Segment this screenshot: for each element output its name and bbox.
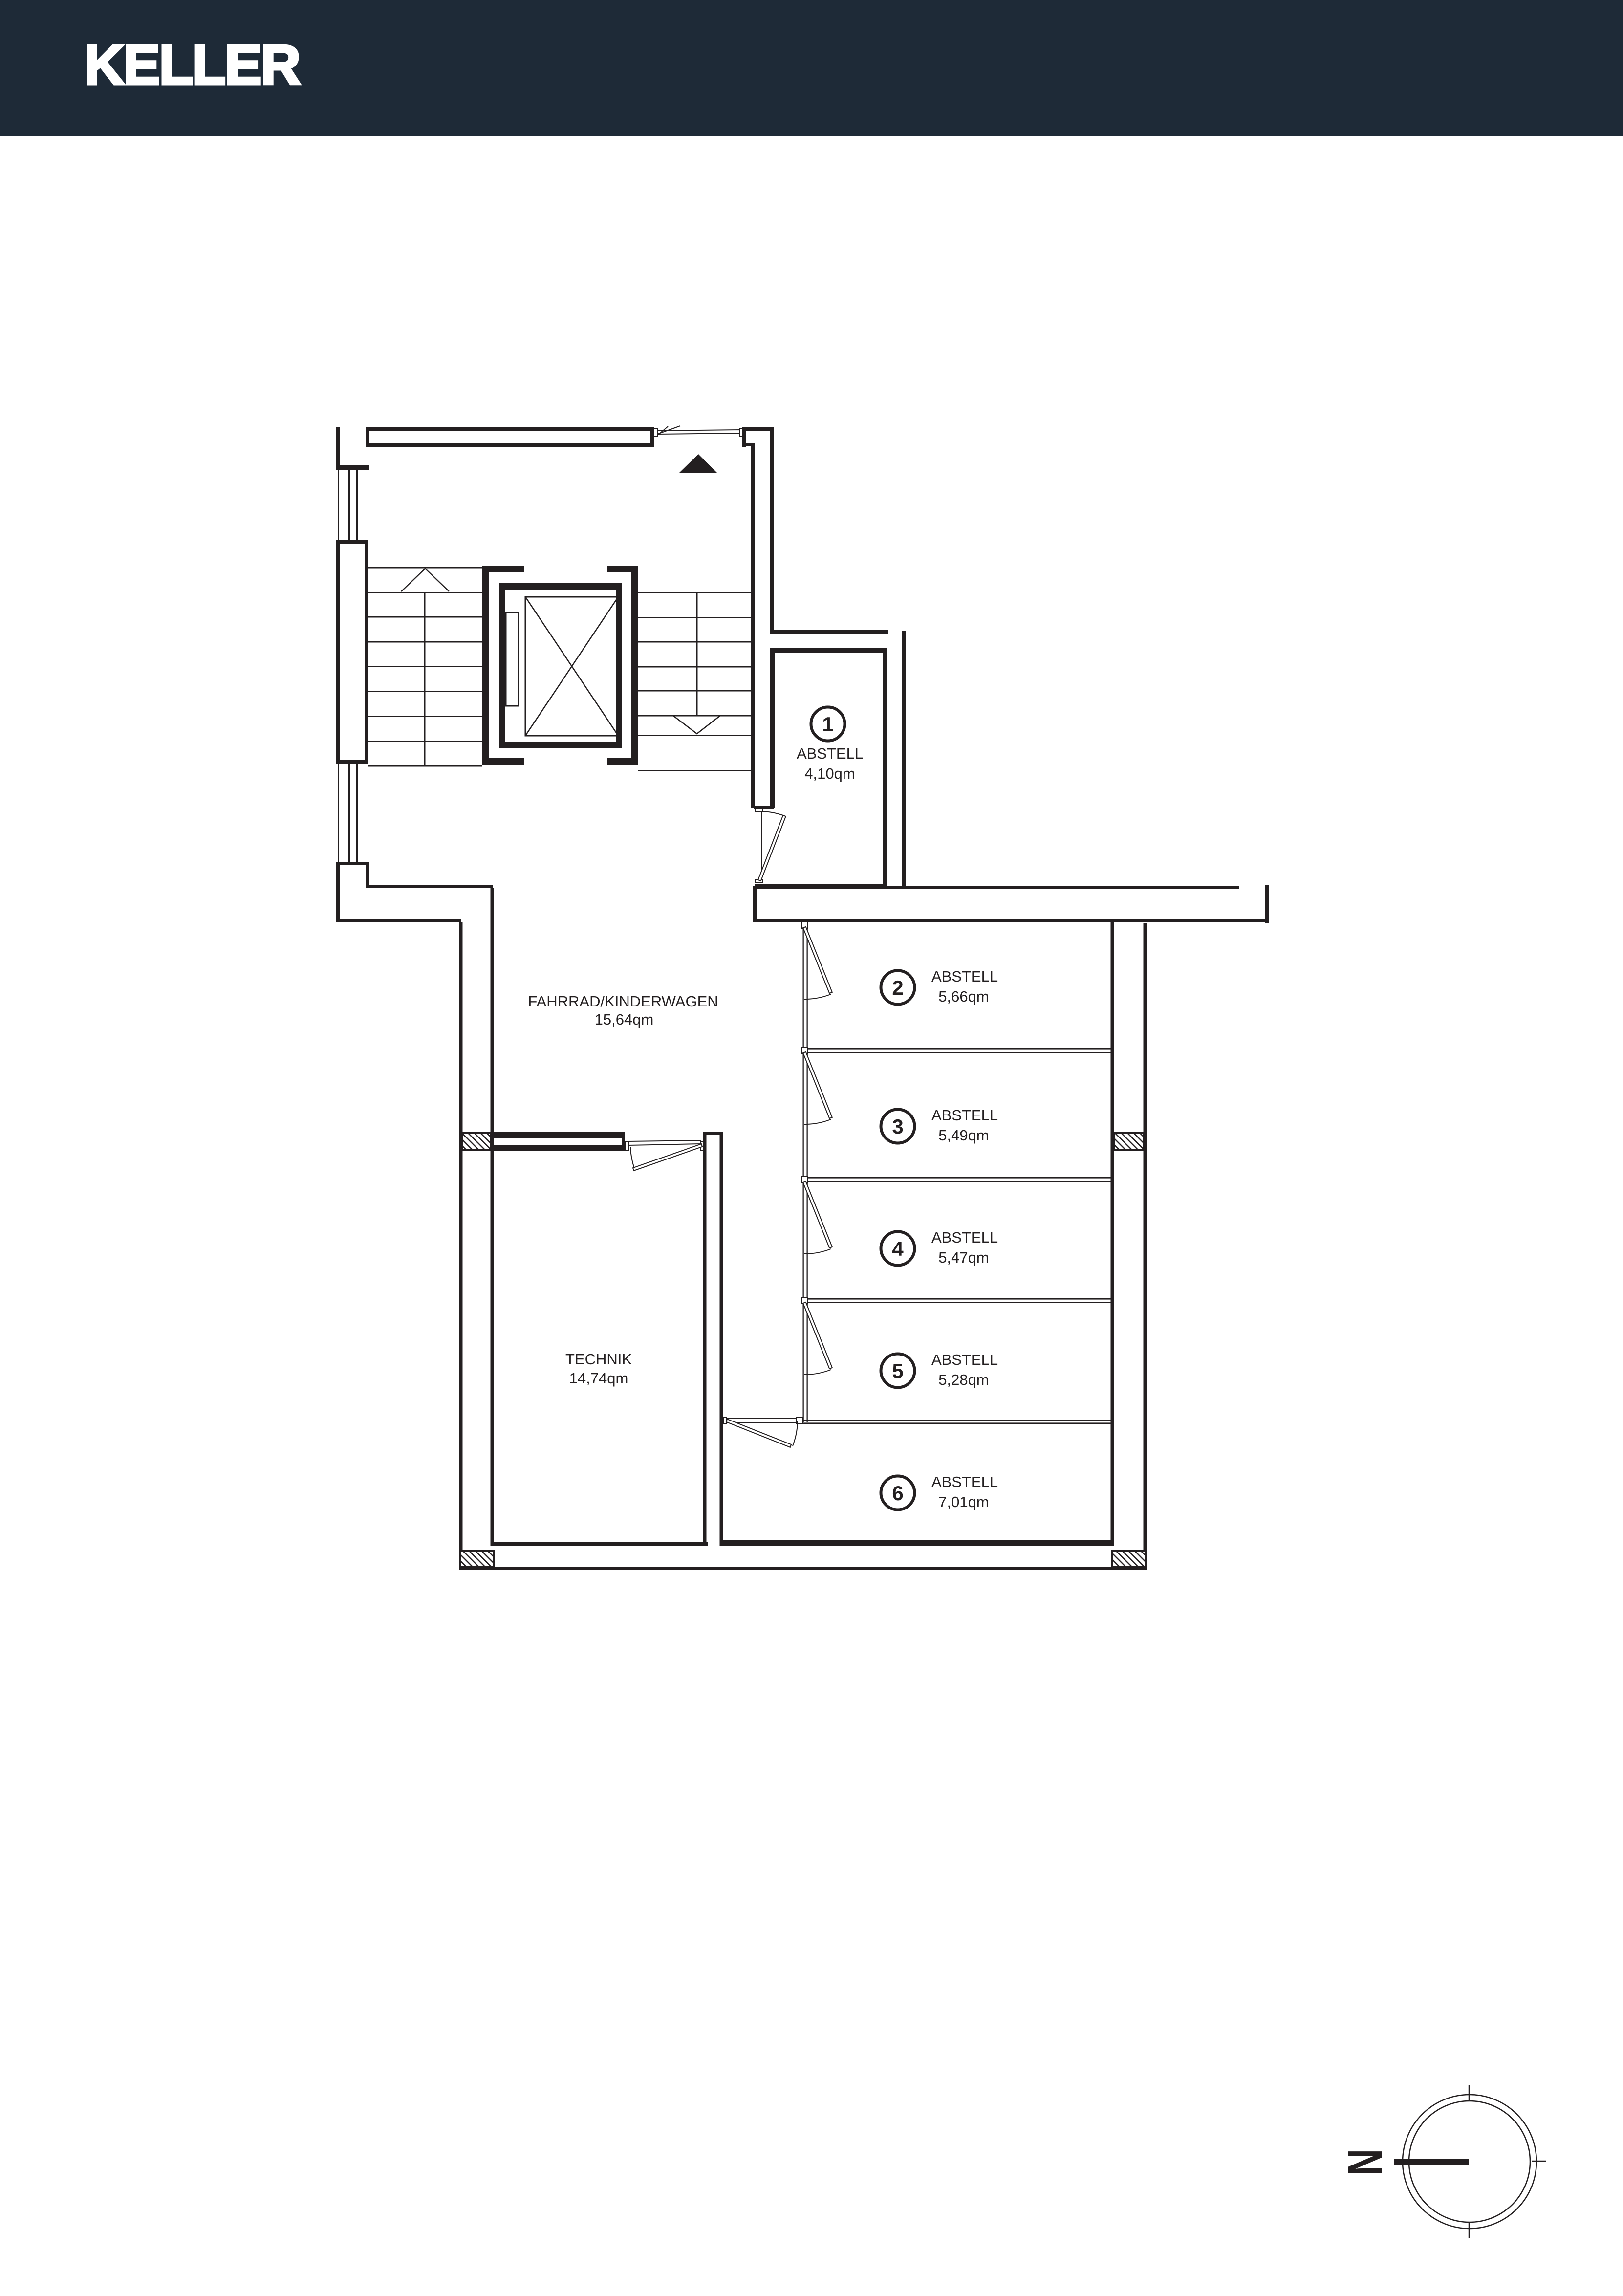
svg-text:5,47qm: 5,47qm bbox=[938, 1249, 989, 1266]
svg-text:KELLER: KELLER bbox=[84, 34, 300, 96]
svg-text:5,49qm: 5,49qm bbox=[938, 1127, 989, 1144]
svg-text:ABSTELL: ABSTELL bbox=[931, 1107, 998, 1124]
svg-text:N: N bbox=[1338, 2149, 1393, 2176]
svg-text:4,10qm: 4,10qm bbox=[804, 765, 855, 782]
svg-text:2: 2 bbox=[892, 976, 903, 999]
svg-text:ABSTELL: ABSTELL bbox=[931, 968, 998, 985]
svg-text:15,64qm: 15,64qm bbox=[595, 1011, 654, 1028]
svg-text:3: 3 bbox=[892, 1115, 903, 1138]
svg-text:5,28qm: 5,28qm bbox=[938, 1371, 989, 1388]
svg-text:4: 4 bbox=[892, 1237, 904, 1260]
svg-text:14,74qm: 14,74qm bbox=[569, 1370, 628, 1387]
svg-text:FAHRRAD/KINDERWAGEN: FAHRRAD/KINDERWAGEN bbox=[528, 993, 718, 1010]
svg-text:ABSTELL: ABSTELL bbox=[931, 1473, 998, 1490]
svg-text:7,01qm: 7,01qm bbox=[938, 1493, 989, 1510]
svg-text:5: 5 bbox=[892, 1359, 903, 1382]
svg-text:ABSTELL: ABSTELL bbox=[931, 1229, 998, 1246]
svg-text:TECHNIK: TECHNIK bbox=[565, 1351, 632, 1368]
svg-text:1: 1 bbox=[822, 713, 833, 736]
svg-text:ABSTELL: ABSTELL bbox=[931, 1351, 998, 1368]
svg-text:5,66qm: 5,66qm bbox=[938, 988, 989, 1005]
svg-text:ABSTELL: ABSTELL bbox=[797, 745, 863, 762]
svg-text:6: 6 bbox=[892, 1482, 903, 1505]
